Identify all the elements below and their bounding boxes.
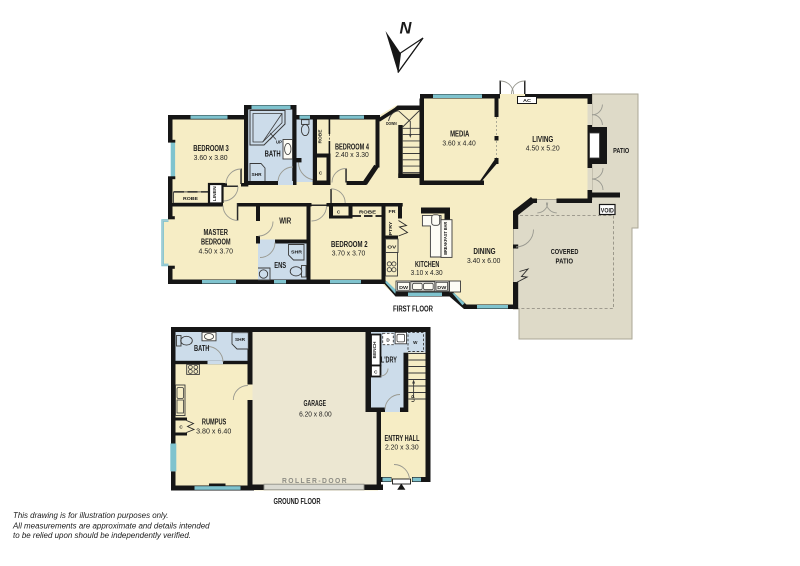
svg-text:This drawing is for illustrati: This drawing is for illustration purpose…	[13, 510, 168, 520]
svg-text:PATIO: PATIO	[556, 256, 574, 265]
svg-text:PTRY: PTRY	[388, 222, 393, 236]
svg-text:FR: FR	[389, 209, 397, 214]
svg-text:MEDIA: MEDIA	[450, 129, 469, 138]
svg-text:SHR: SHR	[235, 337, 246, 342]
svg-text:OV: OV	[387, 244, 397, 249]
svg-text:All measurements are approxima: All measurements are approximate and det…	[12, 520, 210, 530]
svg-text:BATH: BATH	[265, 149, 281, 158]
svg-text:RUMPUS: RUMPUS	[202, 417, 227, 426]
svg-text:ENS: ENS	[274, 261, 286, 270]
svg-text:N: N	[400, 20, 413, 38]
svg-text:4.50 x 3.70: 4.50 x 3.70	[199, 246, 234, 255]
svg-text:3.60 x 4.40: 3.60 x 4.40	[442, 138, 475, 147]
svg-text:SHR: SHR	[252, 172, 263, 177]
svg-text:UP: UP	[276, 140, 282, 145]
svg-text:DINING: DINING	[473, 247, 495, 256]
svg-text:WIR: WIR	[279, 216, 291, 225]
svg-text:GROUND FLOOR: GROUND FLOOR	[274, 497, 321, 506]
svg-text:SHR: SHR	[291, 250, 303, 255]
svg-text:COVERED: COVERED	[551, 247, 579, 256]
svg-text:6.20 x 8.00: 6.20 x 8.00	[299, 410, 332, 419]
svg-text:DW: DW	[437, 285, 447, 290]
svg-text:4.50 x 5.20: 4.50 x 5.20	[526, 144, 560, 153]
svg-text:UP: UP	[410, 395, 415, 402]
svg-text:3.80 x 6.40: 3.80 x 6.40	[196, 427, 231, 436]
svg-text:W: W	[413, 340, 418, 345]
svg-text:to be relied upon should be in: to be relied upon should be independentl…	[13, 530, 191, 540]
svg-text:VOID: VOID	[601, 208, 615, 214]
svg-text:3.70 x 3.70: 3.70 x 3.70	[332, 249, 366, 258]
svg-text:FIRST FLOOR: FIRST FLOOR	[393, 304, 433, 313]
svg-text:2.40 x 3.30: 2.40 x 3.30	[335, 150, 369, 159]
svg-text:ROBE: ROBE	[318, 130, 323, 144]
svg-text:L'DRY: L'DRY	[381, 356, 397, 365]
svg-text:2.20 x 3.30: 2.20 x 3.30	[385, 442, 419, 451]
svg-text:DW: DW	[399, 285, 409, 290]
svg-text:3.60 x 3.80: 3.60 x 3.80	[194, 153, 228, 162]
svg-text:GARAGE: GARAGE	[304, 399, 327, 408]
svg-text:DOWN: DOWN	[386, 121, 397, 126]
svg-text:3.40 x 6.00: 3.40 x 6.00	[467, 256, 500, 265]
svg-text:LINEN: LINEN	[212, 186, 217, 202]
svg-text:AC: AC	[523, 98, 532, 103]
svg-text:MASTER: MASTER	[203, 228, 228, 237]
svg-text:3.10 x 4.30: 3.10 x 4.30	[411, 268, 443, 277]
svg-text:ROBE: ROBE	[359, 210, 376, 215]
svg-text:BENCH: BENCH	[372, 341, 377, 359]
svg-text:ROBE: ROBE	[183, 196, 198, 201]
svg-text:PATIO: PATIO	[613, 146, 629, 155]
svg-text:ROLLER-DOOR: ROLLER-DOOR	[282, 478, 348, 485]
svg-text:BATH: BATH	[194, 344, 210, 353]
svg-text:BEDROOM: BEDROOM	[201, 238, 231, 247]
svg-text:BREAKFAST BAR: BREAKFAST BAR	[443, 221, 448, 255]
